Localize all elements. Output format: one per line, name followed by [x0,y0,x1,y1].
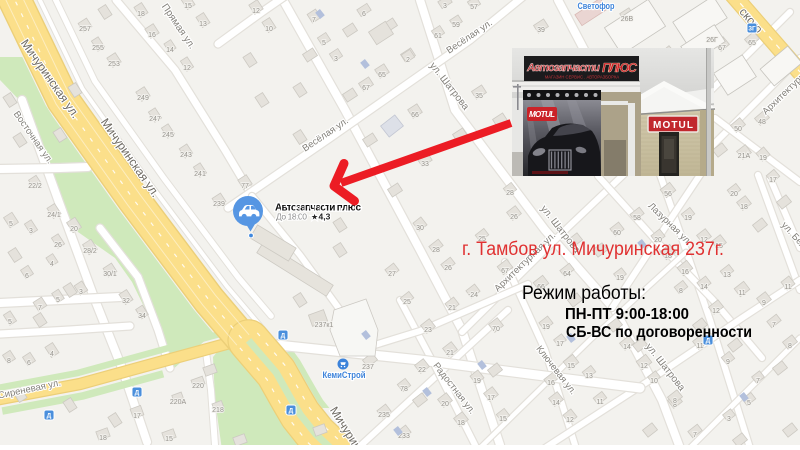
svg-text:21: 21 [446,350,454,357]
svg-text:3: 3 [443,3,447,10]
svg-text:26: 26 [510,214,518,221]
svg-text:СБ-ВС по договоренности: СБ-ВС по договоренности [566,324,752,341]
svg-text:18: 18 [137,11,145,18]
svg-text:24/1: 24/1 [47,212,61,219]
svg-text:18: 18 [457,420,465,427]
svg-text:237к1: 237к1 [315,322,334,329]
svg-text:5: 5 [56,297,60,304]
svg-text:16: 16 [681,269,689,276]
svg-text:3: 3 [29,228,33,235]
svg-text:9: 9 [762,300,766,307]
svg-text:12: 12 [566,417,574,424]
svg-text:15: 15 [165,436,173,443]
svg-text:67: 67 [718,45,726,52]
svg-text:7: 7 [756,378,760,385]
svg-text:13: 13 [723,272,731,279]
svg-text:До 18:00: До 18:00 [276,212,307,222]
svg-text:22: 22 [418,367,426,374]
svg-text:3: 3 [334,56,338,63]
svg-text:★: ★ [311,213,318,222]
svg-text:11: 11 [696,343,703,350]
svg-text:8: 8 [788,343,792,350]
svg-text:13: 13 [199,21,207,28]
svg-text:7: 7 [693,432,697,439]
svg-text:Режим работы:: Режим работы: [522,283,646,304]
svg-text:17: 17 [556,341,564,348]
svg-text:2: 2 [406,57,410,64]
svg-text:MOTUL: MOTUL [529,110,555,119]
svg-text:14: 14 [700,284,708,291]
svg-text:67: 67 [362,85,370,92]
svg-text:11: 11 [738,290,745,297]
svg-text:59: 59 [452,22,460,29]
svg-text:25: 25 [403,299,411,306]
svg-text:61: 61 [434,33,442,40]
svg-text:12: 12 [183,65,191,72]
svg-text:7: 7 [312,17,316,24]
svg-text:11: 11 [596,399,603,406]
svg-text:Д: Д [47,413,52,420]
svg-text:48: 48 [758,119,766,126]
svg-text:30/1: 30/1 [103,271,117,278]
svg-text:10: 10 [265,26,273,33]
svg-text:9: 9 [726,359,730,366]
svg-text:32: 32 [122,298,130,305]
svg-text:70: 70 [492,326,500,333]
svg-text:19: 19 [473,378,481,385]
svg-text:-24: -24 [468,292,478,299]
svg-text:14: 14 [166,47,174,54]
svg-text:220А: 220А [170,399,187,406]
svg-text:26Г: 26Г [706,37,718,44]
svg-text:257: 257 [79,26,91,33]
svg-text:13: 13 [585,373,593,380]
svg-text:218: 218 [212,407,224,414]
svg-text:19: 19 [684,215,692,222]
svg-text:243: 243 [180,152,192,159]
svg-text:16: 16 [148,32,156,39]
svg-text:50: 50 [734,126,742,133]
svg-text:15: 15 [184,3,192,10]
svg-text:16: 16 [547,380,555,387]
svg-text:220: 220 [192,383,204,390]
svg-text:ПН-ПТ 9:00-18:00: ПН-ПТ 9:00-18:00 [565,306,689,323]
svg-text:8: 8 [673,398,677,405]
svg-text:Д: Д [281,333,286,340]
svg-text:6: 6 [27,360,31,367]
svg-text:35: 35 [475,93,483,100]
svg-text:247: 247 [149,116,161,123]
svg-text:10: 10 [650,378,658,385]
svg-text:5: 5 [9,221,13,228]
svg-text:Д: Д [289,408,294,415]
svg-text:15: 15 [567,363,575,370]
svg-text:34: 34 [138,313,146,320]
svg-text:235: 235 [378,412,390,419]
svg-text:26: 26 [444,265,452,272]
svg-text:4: 4 [50,261,54,268]
svg-text:8: 8 [7,358,11,365]
svg-text:14: 14 [552,400,560,407]
svg-text:21А: 21А [738,153,751,160]
svg-text:3Г: 3Г [748,26,756,33]
svg-text:28: 28 [432,247,440,254]
svg-text:Светофор: Светофор [578,1,615,11]
svg-text:5: 5 [747,400,751,407]
svg-text:65: 65 [378,72,386,79]
svg-text:20: 20 [730,191,738,198]
svg-text:18: 18 [99,435,107,442]
svg-text:ПЛЮС: ПЛЮС [602,60,638,75]
svg-text:12: 12 [252,8,260,15]
svg-text:4,3: 4,3 [319,212,331,222]
svg-text:27: 27 [388,271,396,278]
svg-text:17: 17 [769,177,777,184]
svg-text:8: 8 [679,288,683,295]
svg-text:7: 7 [38,305,42,312]
svg-text:249: 249 [137,95,149,102]
svg-text:MOTUL: MOTUL [653,120,693,131]
svg-text:6: 6 [25,273,29,280]
svg-text:17: 17 [487,395,495,402]
svg-text:28: 28 [506,190,514,197]
svg-text:26В: 26В [621,16,634,23]
svg-text:22/2: 22/2 [28,183,42,190]
svg-text:28/2: 28/2 [83,248,97,255]
svg-text:64: 64 [563,271,571,278]
svg-text:245: 245 [162,132,174,139]
svg-text:23: 23 [424,327,432,334]
svg-text:Автозапчасти: Автозапчасти [526,62,600,74]
svg-text:12: 12 [640,363,648,370]
svg-text:66: 66 [411,112,419,119]
svg-text:12: 12 [712,308,720,315]
svg-text:3: 3 [79,289,83,296]
svg-text:5: 5 [8,319,12,326]
svg-text:18: 18 [740,204,748,211]
svg-text:3: 3 [727,416,731,423]
svg-text:21: 21 [448,305,456,312]
svg-text:78: 78 [400,386,408,393]
svg-text:241: 241 [194,171,206,178]
svg-text:77: 77 [241,183,249,190]
svg-text:239: 239 [213,201,225,208]
svg-text:20: 20 [441,401,449,408]
svg-text:57: 57 [470,4,478,11]
svg-text:60: 60 [613,230,621,237]
svg-text:20: 20 [70,226,78,233]
svg-text:г. Тамбов ул. Мичуринская 237г: г. Тамбов ул. Мичуринская 237г. [462,239,724,260]
svg-text:33: 33 [421,161,429,168]
svg-text:4: 4 [50,351,54,358]
svg-text:65: 65 [748,40,756,47]
svg-text:19: 19 [542,324,550,331]
svg-text:14: 14 [623,344,631,351]
svg-text:Д: Д [135,390,140,397]
svg-text:255: 255 [92,45,104,52]
svg-text:26: 26 [54,242,62,249]
svg-text:КемиСтрой: КемиСтрой [323,370,366,380]
svg-text:МАГАЗИН СЕРВИС . АВТОРАЗБОРКА: МАГАЗИН СЕРВИС . АВТОРАЗБОРКА [545,75,620,80]
svg-text:56: 56 [664,191,672,198]
svg-text:19: 19 [759,155,767,162]
svg-text:19: 19 [616,275,624,282]
svg-text:11: 11 [784,284,791,291]
svg-text:7: 7 [772,322,776,329]
svg-text:39: 39 [537,27,545,34]
svg-text:253: 253 [108,61,120,68]
svg-text:30: 30 [416,225,424,232]
svg-text:17: 17 [133,413,141,420]
svg-text:58: 58 [633,215,641,222]
svg-text:6: 6 [362,11,366,18]
svg-text:5: 5 [322,40,326,47]
svg-text:15: 15 [499,416,507,423]
